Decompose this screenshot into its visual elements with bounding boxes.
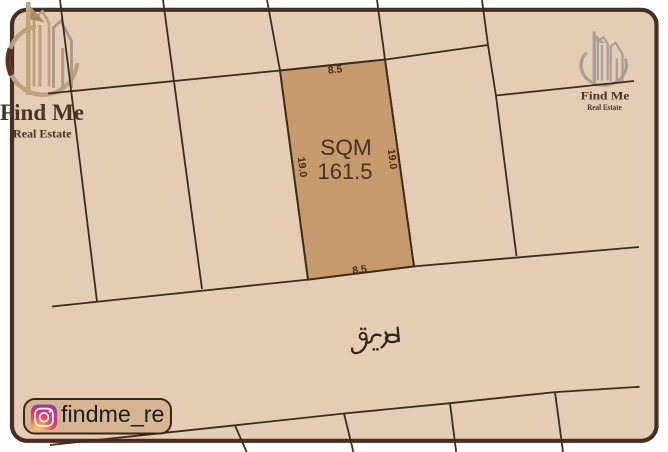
- svg-text:161.5: 161.5: [317, 159, 372, 184]
- svg-text:Real Estate: Real Estate: [13, 127, 72, 141]
- svg-text:8.5: 8.5: [352, 263, 368, 277]
- svg-text:Find Me: Find Me: [581, 89, 630, 103]
- svg-text:Real Estate: Real Estate: [587, 103, 622, 112]
- svg-text:SQM: SQM: [320, 135, 372, 160]
- svg-text:19.0: 19.0: [385, 148, 399, 170]
- svg-text:8.5: 8.5: [327, 63, 343, 76]
- svg-text:19.0: 19.0: [295, 156, 309, 178]
- svg-text:findme_re: findme_re: [61, 401, 165, 427]
- svg-text:Find Me: Find Me: [0, 100, 84, 126]
